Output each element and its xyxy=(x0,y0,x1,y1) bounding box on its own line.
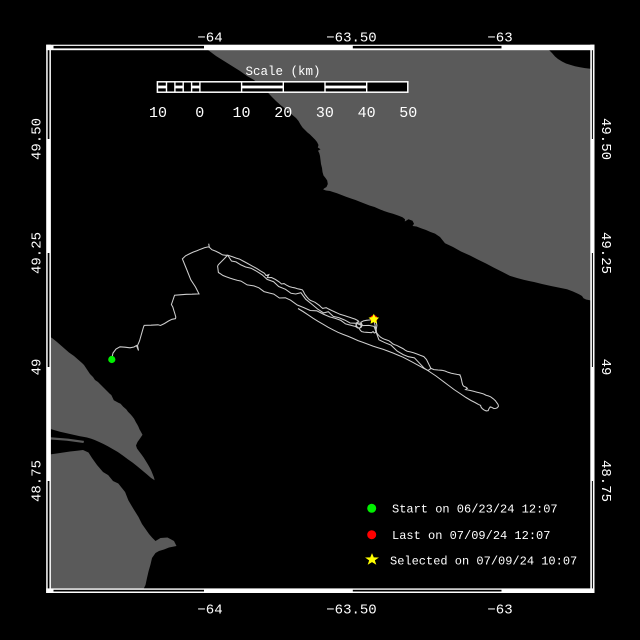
svg-text:Scale (km): Scale (km) xyxy=(245,65,320,79)
svg-text:Start on 06/23/24 12:07: Start on 06/23/24 12:07 xyxy=(392,503,558,517)
svg-text:−63.50: −63.50 xyxy=(326,603,376,619)
svg-text:Selected on 07/09/24 10:07: Selected on 07/09/24 10:07 xyxy=(390,555,577,569)
svg-text:−63.50: −63.50 xyxy=(326,31,376,47)
svg-text:48.75: 48.75 xyxy=(597,460,613,502)
svg-text:−63: −63 xyxy=(487,31,512,47)
svg-text:10: 10 xyxy=(149,105,167,122)
svg-text:49.25: 49.25 xyxy=(597,232,613,274)
svg-text:49.25: 49.25 xyxy=(30,232,46,274)
svg-text:−64: −64 xyxy=(197,31,222,47)
svg-text:49.50: 49.50 xyxy=(30,118,46,160)
svg-text:49: 49 xyxy=(597,359,613,376)
svg-text:50: 50 xyxy=(399,105,417,122)
svg-text:40: 40 xyxy=(358,105,376,122)
svg-text:49: 49 xyxy=(30,359,46,376)
svg-text:20: 20 xyxy=(274,105,292,122)
svg-text:−63: −63 xyxy=(487,603,512,619)
svg-text:30: 30 xyxy=(316,105,334,122)
svg-text:10: 10 xyxy=(232,105,250,122)
svg-text:−64: −64 xyxy=(197,603,222,619)
svg-text:Last on 07/09/24 12:07: Last on 07/09/24 12:07 xyxy=(392,529,550,543)
svg-text:49.50: 49.50 xyxy=(597,118,613,160)
svg-text:0: 0 xyxy=(195,105,204,122)
svg-text:48.75: 48.75 xyxy=(30,460,46,502)
